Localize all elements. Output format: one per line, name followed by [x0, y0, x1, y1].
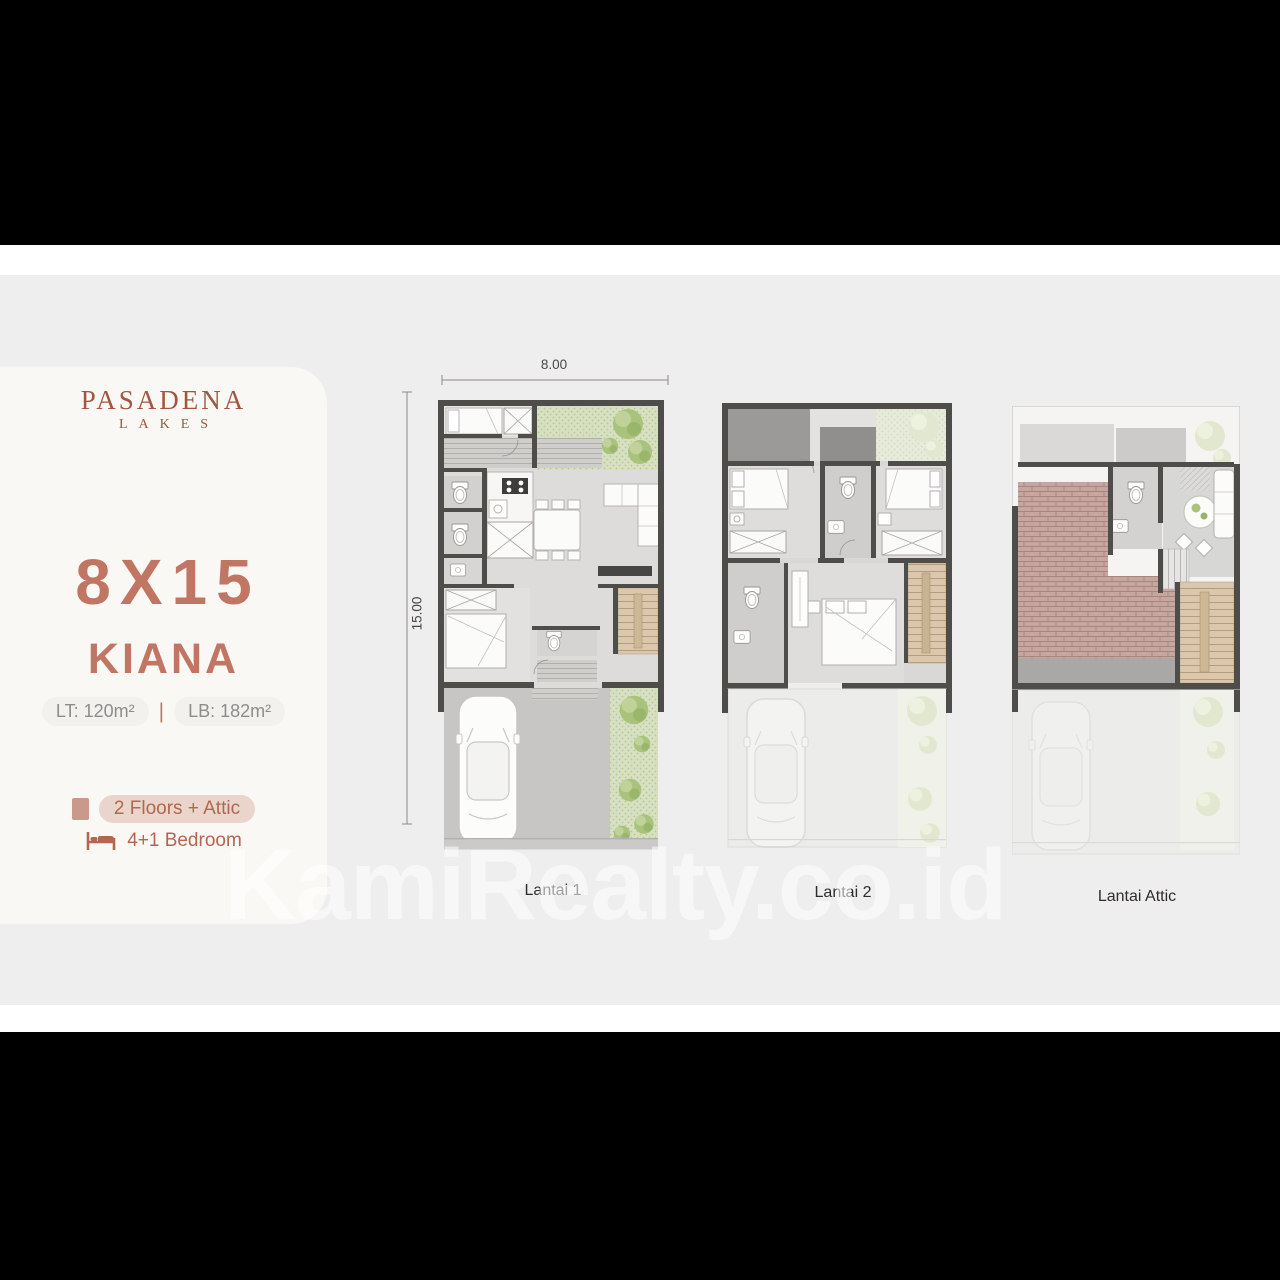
- bathroom-attic: [1108, 467, 1163, 555]
- brand-subname: LAKES: [0, 417, 327, 433]
- land-area-badge: LT: 120m²: [42, 697, 149, 726]
- unit-info-card: PASADENA LAKES 8X15 KIANA LT: 120m² | LB…: [0, 367, 327, 924]
- content-area: PASADENA LAKES 8X15 KIANA LT: 120m² | LB…: [0, 275, 1280, 1005]
- wc-hall: [532, 626, 600, 682]
- ghost-carport: [1012, 690, 1240, 854]
- bedroom-feature: 4+1 Bedroom: [85, 830, 242, 852]
- dimension-height-line: [401, 390, 413, 826]
- carport: [438, 688, 664, 850]
- bedroom-label: 4+1 Bedroom: [127, 830, 242, 852]
- dimension-width-line: [440, 374, 670, 386]
- building-icon: [72, 798, 89, 820]
- bathroom-center: [820, 466, 876, 558]
- bathrooms-left: [444, 468, 487, 584]
- floors-label: 2 Floors + Attic: [99, 795, 255, 823]
- brand-name: PASADENA: [0, 385, 327, 416]
- bedroom-left: [728, 466, 820, 558]
- floorplan-lantai-2: [722, 403, 954, 858]
- deck: [444, 438, 602, 468]
- dining-table: [534, 500, 580, 560]
- slide-canvas: PASADENA LAKES 8X15 KIANA LT: 120m² | LB…: [0, 0, 1280, 1280]
- stairs: [904, 563, 946, 663]
- ghost-car-icon: [744, 699, 808, 847]
- plan-label-lantai-2: Lantai 2: [783, 884, 903, 902]
- brand-logo: PASADENA LAKES: [0, 385, 327, 433]
- roof-band: [728, 409, 946, 461]
- floors-feature: 2 Floors + Attic: [72, 795, 255, 823]
- kitchen: [487, 472, 533, 558]
- bedroom-right: [876, 466, 946, 558]
- building-area-badge: LB: 182m²: [174, 697, 285, 726]
- area-info: LT: 120m² | LB: 182m²: [0, 697, 327, 726]
- tv-console: [598, 566, 652, 576]
- bedroom-top-left: [444, 406, 534, 436]
- stairs: [1175, 582, 1234, 683]
- bedroom-bottom-left: [444, 584, 530, 682]
- plan-label-lantai-attic: Lantai Attic: [1062, 888, 1212, 906]
- car-icon: [456, 696, 520, 844]
- unit-name: KIANA: [0, 635, 327, 684]
- area-separator: |: [159, 700, 164, 724]
- bed-icon: [85, 830, 117, 852]
- plan-label-lantai-1: Lantai 1: [493, 882, 613, 900]
- ghost-carport: [722, 689, 952, 847]
- unit-size: 8X15: [0, 545, 327, 619]
- master-bedroom: [788, 563, 904, 683]
- feature-list: 2 Floors + Attic 4+1 Bedroom: [0, 795, 327, 852]
- floorplan-lantai-1: [432, 398, 670, 860]
- bathroom-lower-left: [728, 563, 788, 683]
- ghost-car-icon: [1029, 702, 1093, 850]
- floorplan-lantai-attic: [1012, 406, 1240, 858]
- dimension-width-label: 8.00: [509, 357, 599, 372]
